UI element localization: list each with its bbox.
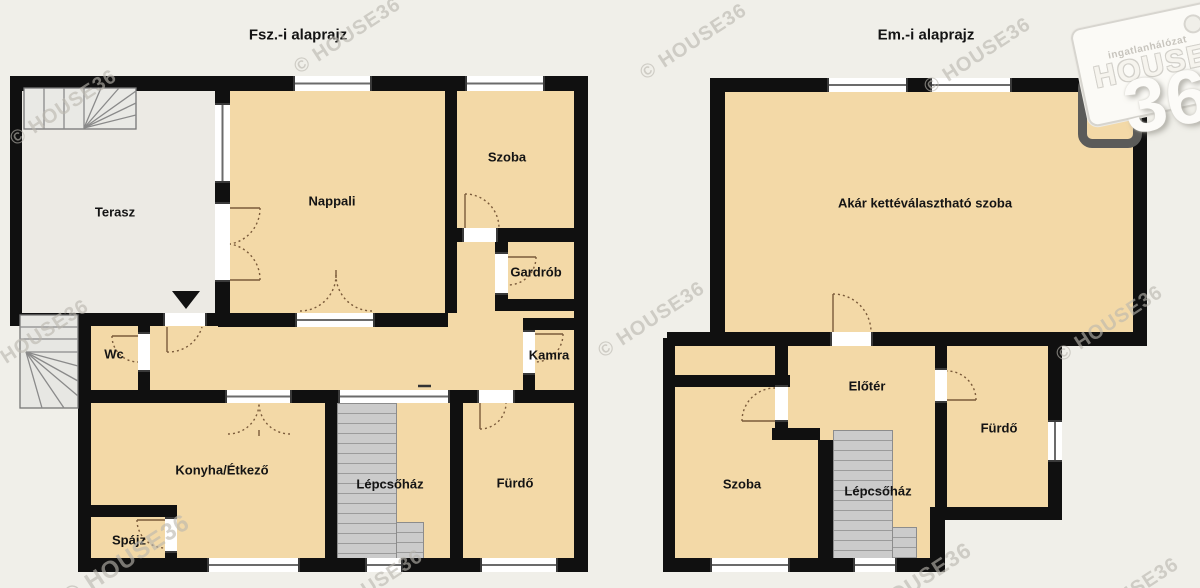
wall-segment [663, 375, 790, 387]
tag-hole-icon [1182, 13, 1200, 36]
watermark: © HOUSE36 [1068, 553, 1183, 588]
room-label-wc: Wc [104, 347, 124, 362]
room-label-eloter: Előtér [849, 379, 886, 394]
room-big [725, 92, 1133, 333]
wall-segment [445, 242, 457, 313]
window [215, 103, 230, 183]
window [207, 558, 300, 572]
room-label-lepcsohaz-ground: Lépcsőház [356, 477, 423, 492]
wall-segment [930, 507, 1062, 520]
door-opening-entrance [163, 313, 207, 326]
window [465, 76, 545, 91]
wall-segment [78, 313, 91, 572]
door-opening-szoba-upper [775, 385, 788, 422]
floorplan-canvas: Fsz.-i alaprajz Em.-i alaprajz Terasz Na… [0, 0, 1200, 588]
room-label-kamra: Kamra [529, 348, 569, 363]
wall-segment [772, 428, 820, 440]
room-label-szoba-upper: Szoba [723, 477, 761, 492]
window [338, 390, 450, 403]
logo-number: 36 [1117, 51, 1200, 151]
watermark: © HOUSE36 [636, 0, 751, 85]
room-label-szoba-ground: Szoba [488, 150, 526, 165]
wall-segment [574, 76, 588, 572]
wall-segment [663, 338, 675, 572]
wall-segment [495, 299, 574, 311]
room-label-furdo-ground: Fürdő [497, 476, 534, 491]
room-label-gardrob: Gardrób [510, 265, 561, 280]
door-opening-bigroom [830, 332, 873, 346]
door-opening-nappali-hall [295, 313, 375, 327]
door-opening-wc [138, 332, 150, 372]
window [480, 558, 558, 572]
window [710, 558, 790, 572]
wall-segment [818, 440, 833, 558]
door-opening-terasz-nappali [215, 202, 230, 282]
plan-title-upper: Em.-i alaprajz [878, 27, 975, 44]
wall-segment [663, 558, 945, 572]
wall-segment [325, 403, 337, 558]
wall-segment [10, 76, 22, 326]
window [853, 558, 897, 572]
wall-segment [450, 403, 463, 558]
door-opening-furdo-ground [477, 390, 515, 403]
door-opening-konyha [225, 390, 292, 403]
room-label-lepcsohaz-upper: Lépcsőház [844, 484, 911, 499]
room-label-konyha: Konyha/Étkező [175, 463, 268, 478]
wall-segment [710, 78, 725, 340]
wall-segment [445, 90, 457, 242]
room-label-terasz: Terasz [95, 205, 135, 220]
door-opening-gardrob [495, 252, 508, 295]
window [1048, 420, 1062, 462]
window [293, 76, 372, 91]
room-label-furdo-upper: Fürdő [981, 421, 1018, 436]
door-opening-szoba [462, 228, 498, 242]
room-label-bigroom: Akár kettéválasztható szoba [838, 196, 1012, 211]
window [827, 78, 908, 92]
room-label-nappali: Nappali [309, 194, 356, 209]
door-opening-furdo-upper [935, 368, 947, 403]
